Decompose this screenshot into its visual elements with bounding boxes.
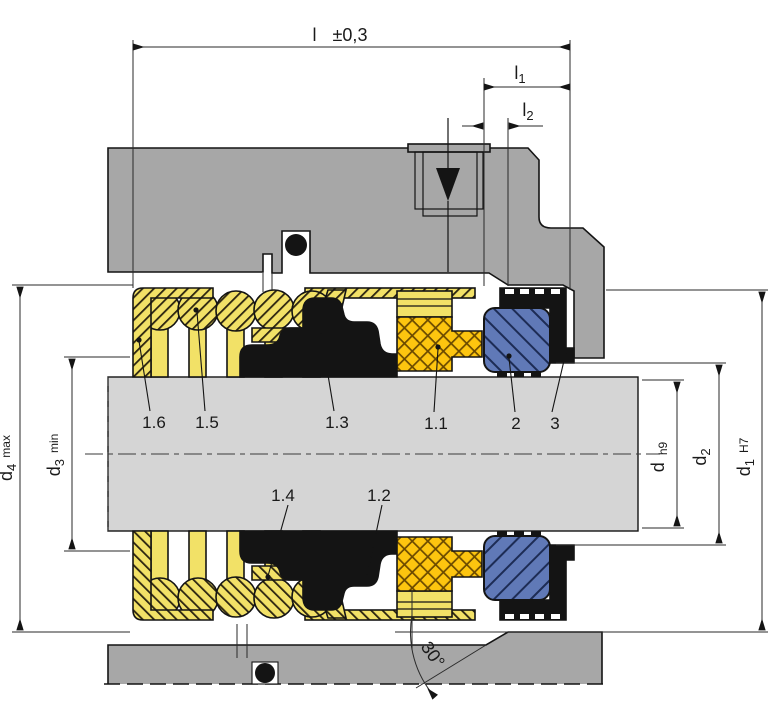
o-ring-upper xyxy=(285,234,307,256)
housing-lower xyxy=(108,632,602,684)
part-label-1-6: 1.6 xyxy=(142,413,166,432)
leader-dot-1-6 xyxy=(136,337,141,342)
part-label-1-5: 1.5 xyxy=(195,413,219,432)
technical-drawing-canvas: l±0,3 l1 l2 d4max d3min dh9 d2 d1H7 30° … xyxy=(0,0,768,716)
dim-text-l: l±0,3 xyxy=(313,25,368,45)
dim-text-l2: l2 xyxy=(522,100,533,123)
part-label-2: 2 xyxy=(511,414,520,433)
dim-text-d1: d1H7 xyxy=(734,437,757,476)
dim-text-d2: d2 xyxy=(690,448,713,465)
leader-dot-2 xyxy=(506,353,511,358)
dim-text-l1: l1 xyxy=(514,63,525,86)
part-label-1-2: 1.2 xyxy=(367,486,391,505)
flush-port-lip xyxy=(408,144,490,152)
dim-text-d3: d3min xyxy=(44,434,67,477)
part-label-1-4: 1.4 xyxy=(271,486,295,505)
part-label-1-3: 1.3 xyxy=(325,413,349,432)
leader-dot-1-1 xyxy=(435,344,440,349)
leader-dot-1-5 xyxy=(193,307,198,312)
part-label-1-1: 1.1 xyxy=(424,414,448,433)
dim-text-d4: d4max xyxy=(0,435,19,481)
seal-section-drawing: l±0,3 l1 l2 d4max d3min dh9 d2 d1H7 30° … xyxy=(0,0,768,716)
leader-dot-1-4 xyxy=(265,574,270,579)
cartridge-lower xyxy=(133,531,574,620)
leader-dot-1-2 xyxy=(364,574,369,579)
o-ring-lower xyxy=(255,663,275,683)
leader-dot-3 xyxy=(563,348,568,353)
dim-text-d: dh9 xyxy=(648,441,670,472)
leader-dot-1-3 xyxy=(318,328,323,333)
part-label-3: 3 xyxy=(550,414,559,433)
